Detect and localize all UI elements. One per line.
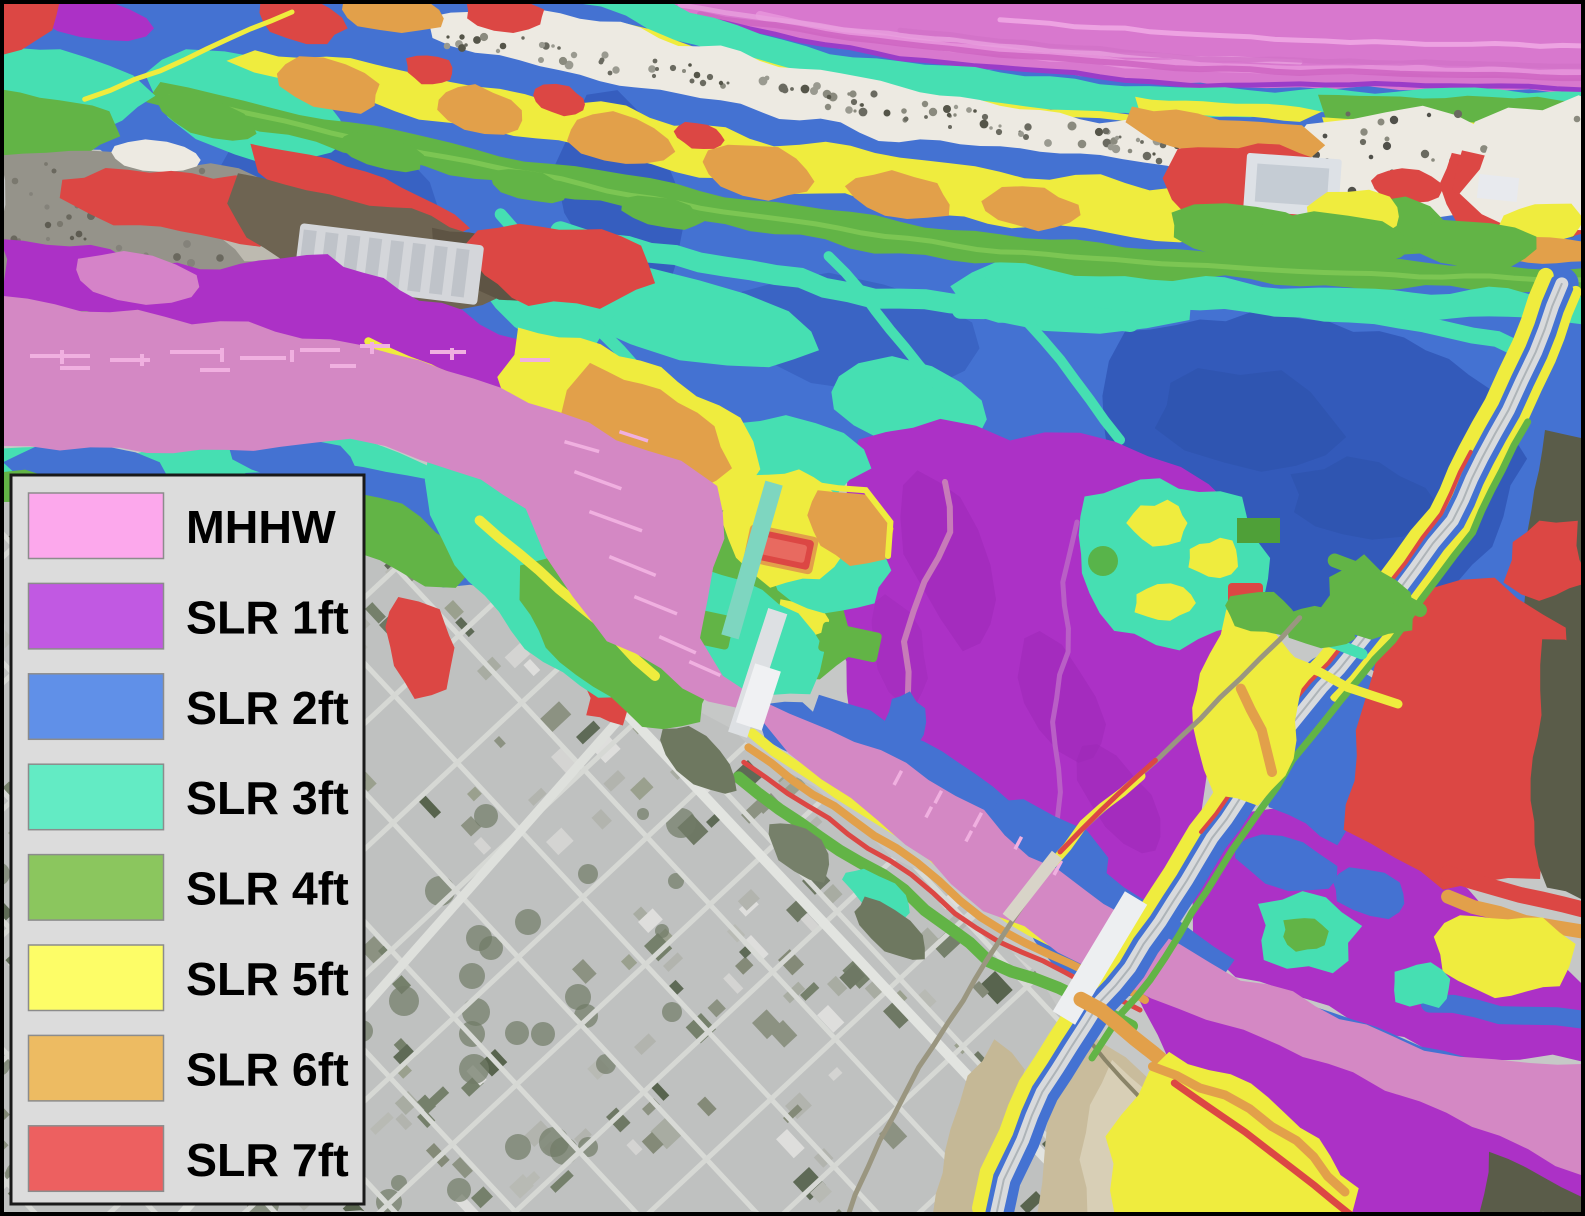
svg-text:SLR 1ft: SLR 1ft xyxy=(186,591,349,643)
svg-text:MHHW: MHHW xyxy=(186,501,336,553)
svg-text:SLR 6ft: SLR 6ft xyxy=(186,1043,349,1095)
svg-text:SLR 4ft: SLR 4ft xyxy=(186,863,349,915)
svg-text:SLR 7ft: SLR 7ft xyxy=(186,1134,349,1186)
svg-text:SLR 2ft: SLR 2ft xyxy=(186,682,349,734)
svg-text:SLR 5ft: SLR 5ft xyxy=(186,953,349,1005)
svg-text:SLR 3ft: SLR 3ft xyxy=(186,772,349,824)
